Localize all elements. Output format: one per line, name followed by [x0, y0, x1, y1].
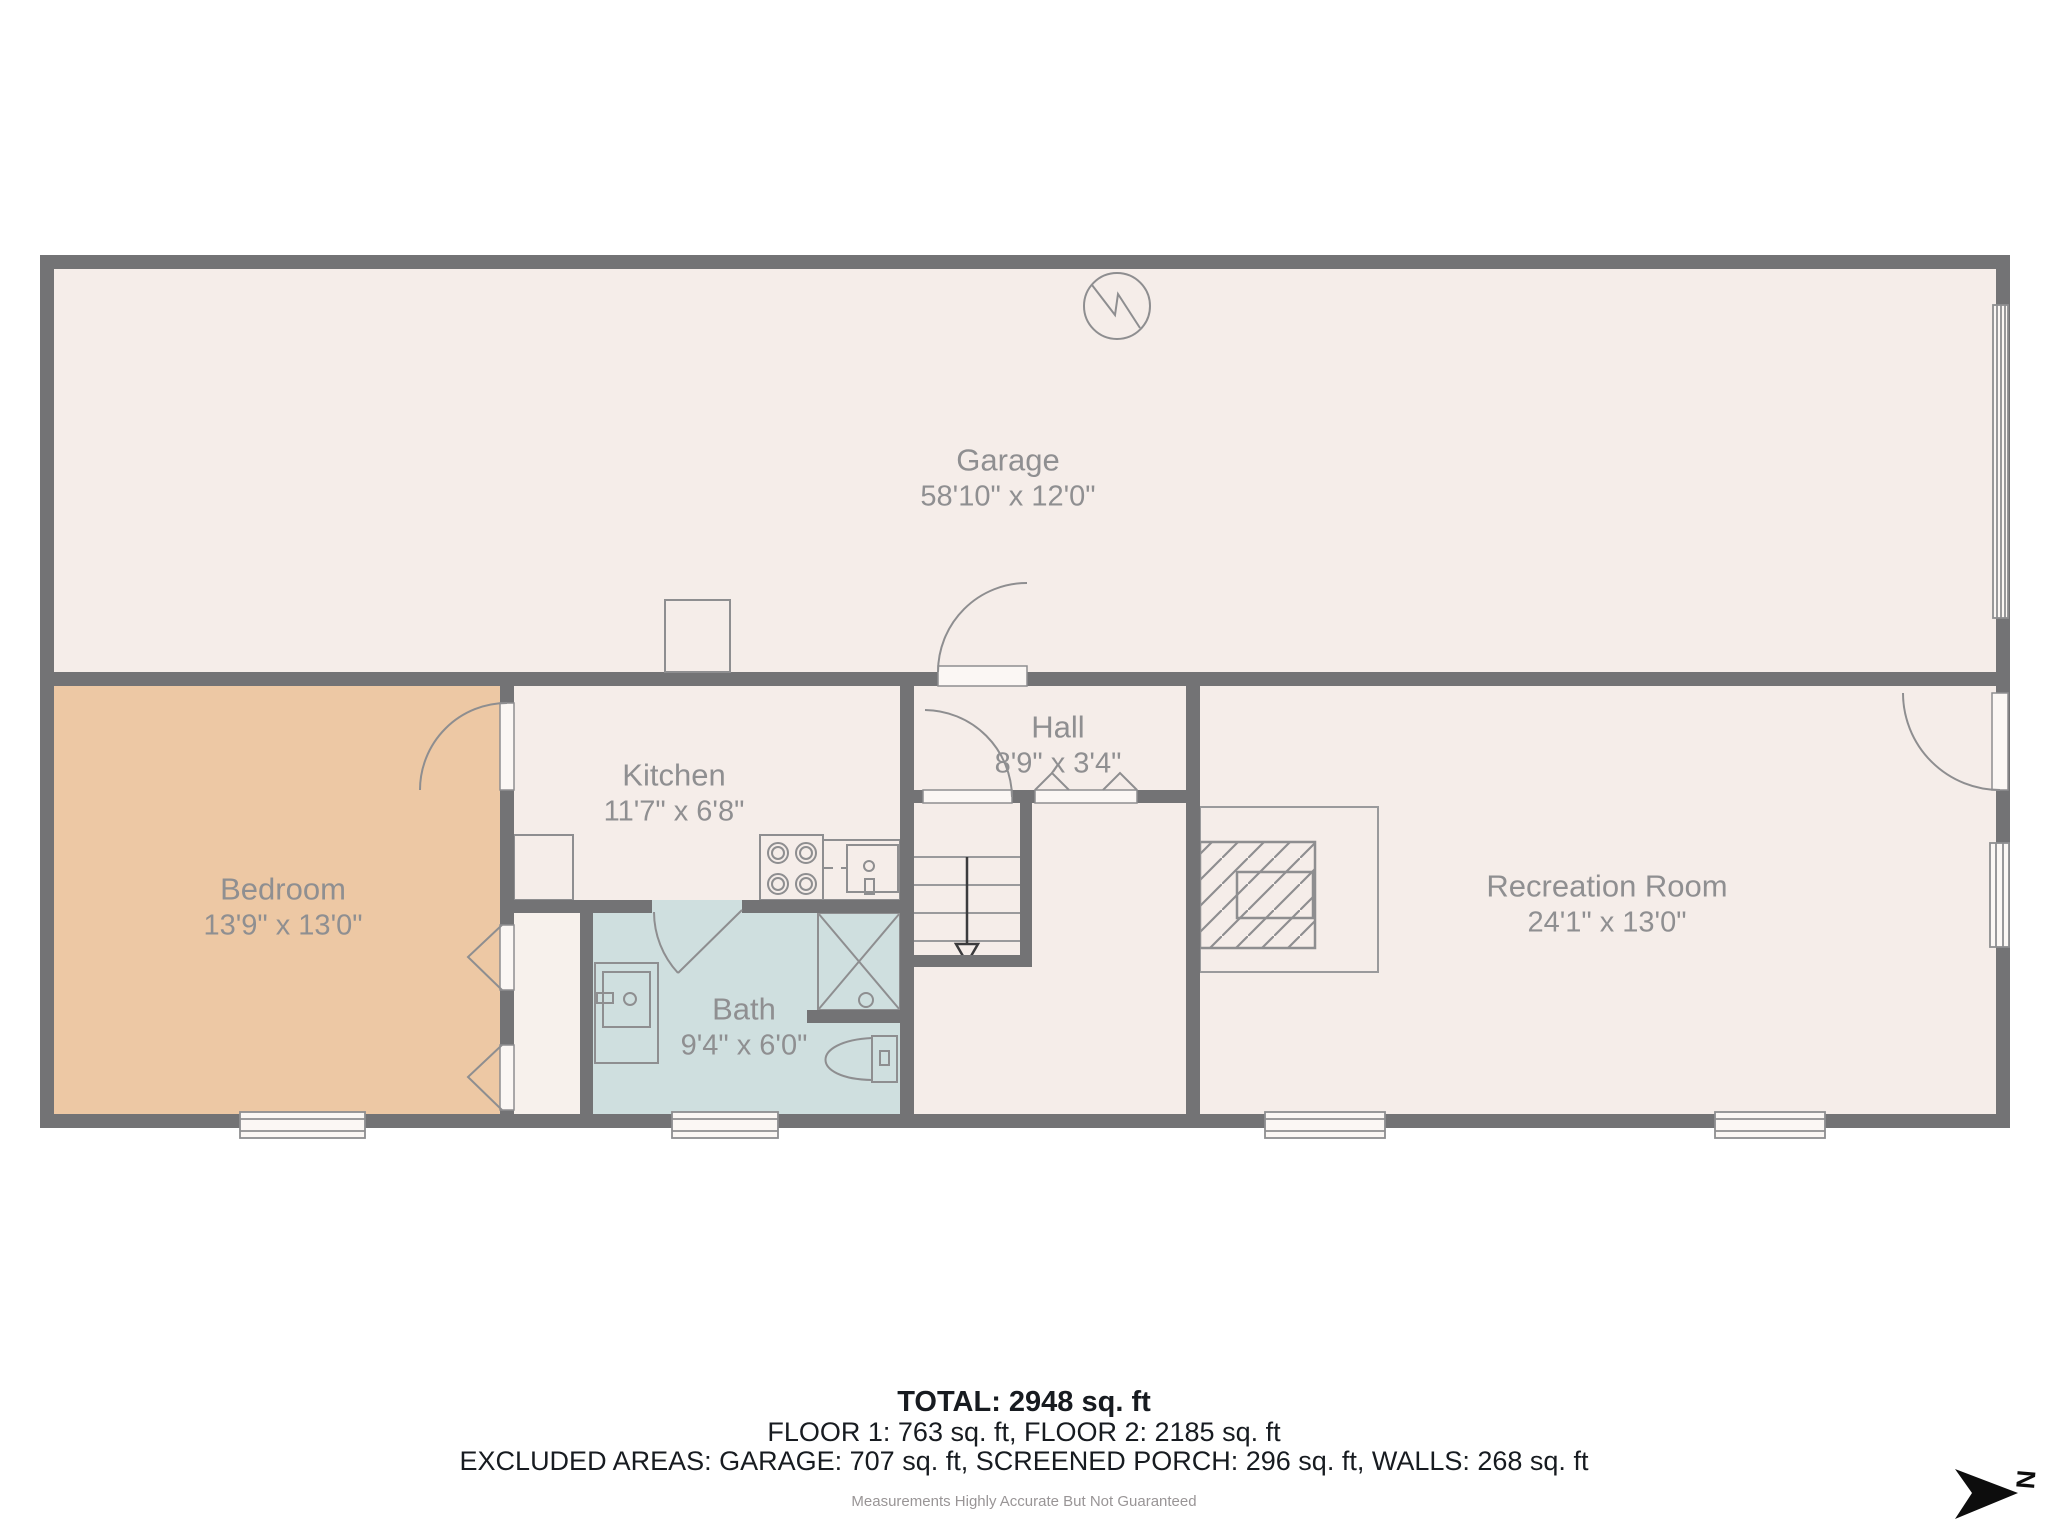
compass-north-label: N [2009, 1469, 2042, 1490]
bath-window [672, 1112, 778, 1138]
hall-stair-floor-area [914, 686, 1186, 1114]
bedroom-floor-area [54, 686, 500, 1114]
bedroom-window [240, 1112, 365, 1138]
garage-sliding-window [1993, 305, 2008, 618]
fireplace-hatch [1200, 842, 1315, 948]
recreation-floor-area [1200, 686, 1996, 1114]
stove-icon [760, 835, 823, 900]
summary-floors: FLOOR 1: 763 sq. ft, FLOOR 2: 2185 sq. f… [0, 1417, 2048, 1448]
summary-excluded-areas: EXCLUDED AREAS: GARAGE: 707 sq. ft, SCRE… [0, 1446, 2048, 1477]
room-fills [54, 269, 1996, 1114]
floor-plan-page: Garage 58'10" x 12'0" Bedroom 13'9" x 13… [0, 0, 2048, 1536]
recreation-window-bottom-left [1265, 1112, 1385, 1138]
recreation-window-right [1990, 843, 2009, 947]
garage-floor-area [54, 269, 1996, 672]
outer-wall-top [40, 255, 2010, 269]
floor-plan-drawing [0, 0, 2048, 1536]
recreation-window-bottom-right [1715, 1112, 1825, 1138]
summary-total: TOTAL: 2948 sq. ft [0, 1386, 2048, 1419]
closet-floor-area [514, 913, 580, 1114]
summary-disclaimer: Measurements Highly Accurate But Not Gua… [0, 1493, 2048, 1510]
outer-wall-left [40, 255, 54, 1128]
kitchen-sink-icon [847, 845, 898, 894]
